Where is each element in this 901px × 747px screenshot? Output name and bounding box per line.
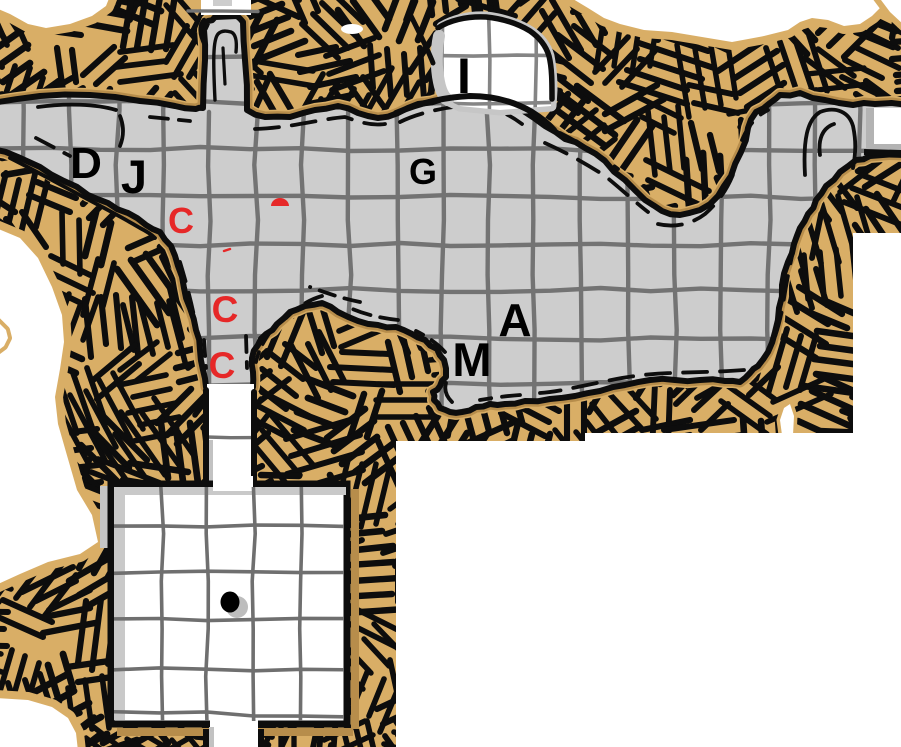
svg-text:J: J: [121, 150, 147, 203]
svg-text:G: G: [409, 151, 437, 192]
svg-text:C: C: [168, 200, 194, 241]
svg-text:I: I: [457, 48, 471, 104]
svg-text:C: C: [212, 289, 239, 330]
svg-text:D: D: [70, 139, 102, 188]
svg-text:C: C: [209, 345, 236, 386]
svg-text:M: M: [452, 333, 491, 386]
svg-text:A: A: [498, 294, 531, 346]
